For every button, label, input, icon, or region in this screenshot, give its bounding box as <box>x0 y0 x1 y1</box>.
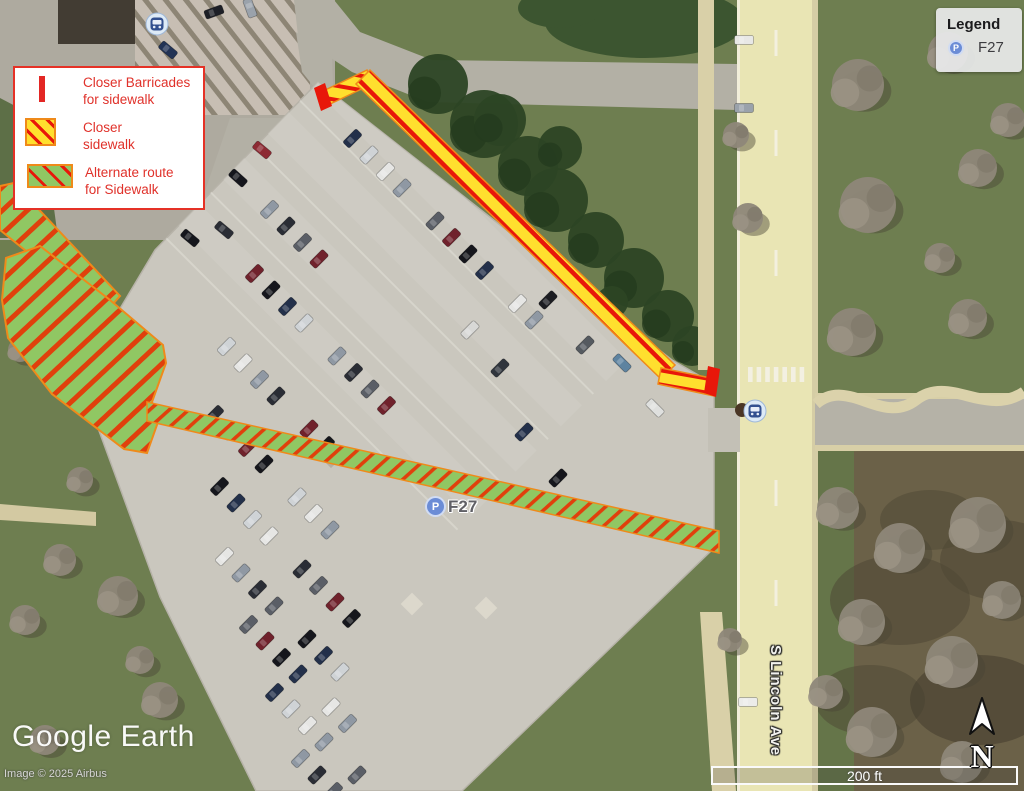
legend-key-item-2-line1: Closer <box>83 119 135 136</box>
scale-bar-label: 200 ft <box>847 768 882 784</box>
imagery-attribution: Image © 2025 Airbus <box>4 768 107 780</box>
closed-sidewalk-swatch <box>25 118 56 146</box>
google-earth-logo: Google Earth <box>12 720 195 754</box>
legend-key-item-1-line2: for sidewalk <box>83 91 190 108</box>
alternate-route-overlay <box>0 183 719 553</box>
legend-key-item-3-line2: for Sidewalk <box>85 181 174 198</box>
legend-title: Legend <box>947 16 1022 33</box>
legend-key: Closer Barricades for sidewalk Closer si… <box>13 66 205 210</box>
map-canvas[interactable]: Closer Barricades for sidewalk Closer si… <box>0 0 1024 791</box>
legend-box: Legend P F27 <box>936 8 1022 72</box>
barricade-swatch <box>39 76 45 102</box>
parking-lot-marker: P F27 <box>425 496 477 517</box>
parking-icon: P <box>425 496 446 517</box>
alternate-route-swatch <box>27 164 73 188</box>
bus-stop-icon <box>742 398 768 429</box>
legend-key-item-1-line1: Closer Barricades <box>83 74 190 91</box>
legend-entry-label: F27 <box>978 39 1004 56</box>
north-arrow-icon <box>952 696 1012 736</box>
north-letter: N <box>952 741 1012 771</box>
bus-stop-icon <box>144 11 170 42</box>
parking-marker-label: F27 <box>448 497 477 517</box>
legend-key-item-3-line1: Alternate route <box>85 164 174 181</box>
parking-icon: P <box>948 40 964 56</box>
closed-sidewalk-overlay <box>321 70 716 396</box>
north-arrow: N <box>952 696 1012 768</box>
legend-key-item-2-line2: sidewalk <box>83 136 135 153</box>
